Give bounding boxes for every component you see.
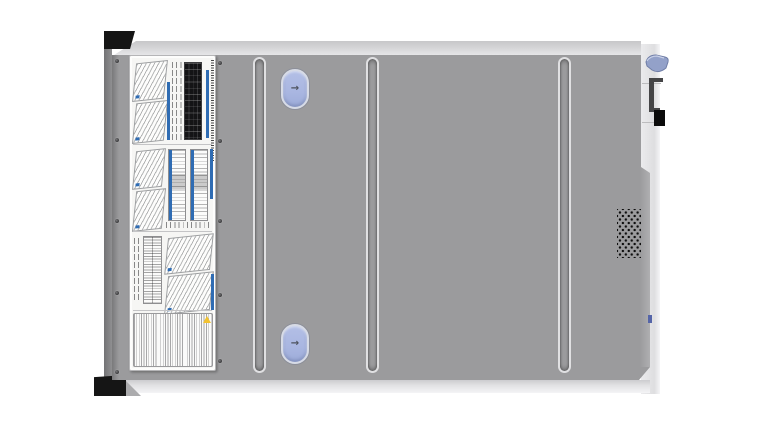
- label-divider: [133, 144, 212, 145]
- hinge-block: [654, 110, 665, 126]
- hinge-bracket: [649, 78, 663, 82]
- label-divider: [133, 310, 212, 311]
- screw-icon: [218, 61, 222, 65]
- top-cover: →→: [112, 55, 650, 380]
- label-title-bar: [206, 70, 210, 138]
- legend-text: [166, 222, 212, 230]
- screw-icon: [115, 370, 119, 374]
- screw-icon: [115, 291, 119, 295]
- label-section-bar: [167, 82, 170, 140]
- vent-perforation: [617, 209, 641, 258]
- arrow-right-icon: →: [291, 339, 299, 349]
- rack-ear-top-left: [104, 31, 135, 49]
- drive-bay-illustration: [184, 62, 202, 140]
- screw-icon: [218, 359, 222, 363]
- cover-release-latch: →: [281, 324, 309, 364]
- cover-release-latch: →: [281, 69, 309, 109]
- stiffening-ridge: [253, 57, 266, 373]
- module-illustration: [132, 148, 166, 190]
- chassis-illustration: [164, 233, 214, 274]
- callout-list-text: [172, 62, 182, 140]
- stiffening-ridge: [366, 57, 379, 373]
- chassis-illustration: [164, 271, 214, 314]
- screw-icon: [115, 59, 119, 63]
- config-table: [168, 149, 186, 221]
- module-illustration: [132, 100, 168, 144]
- screw-icon: [218, 219, 222, 223]
- dimm-slot-map: [143, 236, 162, 304]
- chassis-bottom-edge: [126, 380, 650, 393]
- service-label: [129, 55, 216, 371]
- chassis-left-edge: [104, 46, 112, 379]
- server-top-view: →→: [0, 0, 768, 432]
- screw-icon: [115, 219, 119, 223]
- callout-list-text: [134, 238, 141, 302]
- label-section-bar: [210, 149, 213, 199]
- release-lever-icon: [643, 52, 670, 77]
- label-title-text: [211, 60, 215, 162]
- config-table: [190, 149, 208, 221]
- chassis-top-edge: [112, 41, 641, 55]
- screw-icon: [218, 139, 222, 143]
- screw-icon: [218, 293, 222, 297]
- module-illustration: [132, 188, 166, 232]
- label-section-bar: [211, 274, 214, 310]
- module-illustration: [132, 60, 168, 102]
- arrow-right-icon: →: [291, 84, 299, 94]
- label-divider: [133, 231, 212, 232]
- screw-icon: [115, 138, 119, 142]
- edge-marker: [648, 315, 652, 323]
- stiffening-ridge: [558, 57, 571, 373]
- safety-fine-print: [133, 313, 213, 367]
